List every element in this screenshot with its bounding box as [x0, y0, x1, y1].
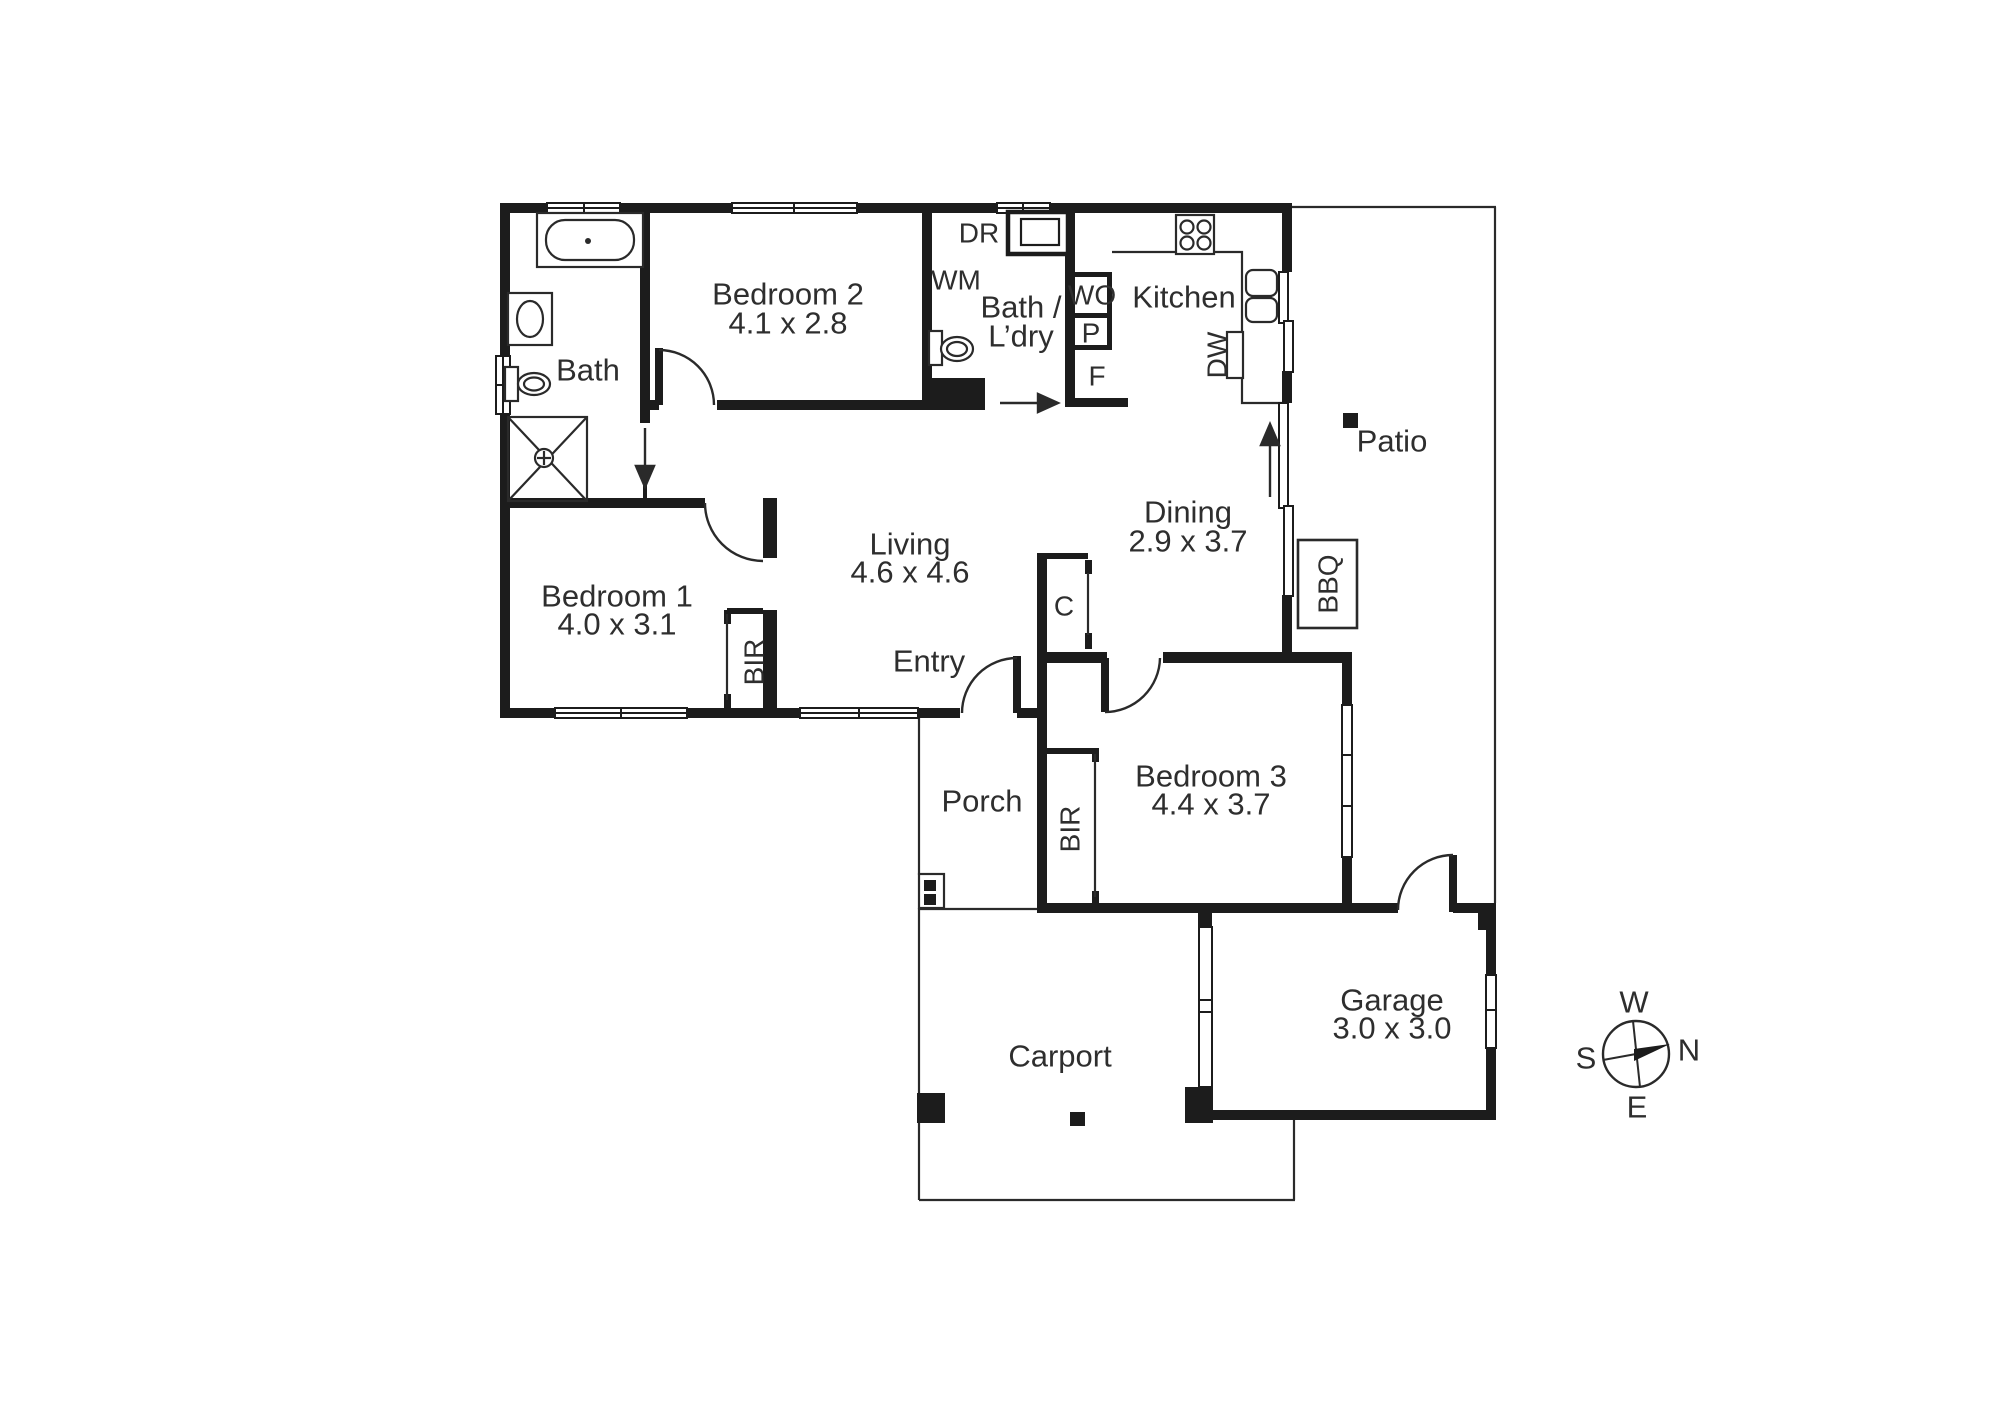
carport-posts [917, 1093, 1085, 1126]
room-label-carport: Carport [1008, 1039, 1112, 1074]
floor-plan-page: W N S E Bath Bedroom 2 4.1 x 2.8 Bath / … [0, 0, 2000, 1413]
room-label-bath: Bath [556, 353, 620, 388]
compass-north-label: N [1678, 1033, 1700, 1068]
room-dims-living: 4.6 x 4.6 [851, 555, 970, 590]
pantry-label: P [1082, 318, 1101, 349]
room-dims-bedroom2: 4.1 x 2.8 [729, 306, 848, 341]
closet-label: C [1054, 591, 1074, 622]
wall-oven-label: WO [1068, 280, 1116, 311]
shower-icon [508, 417, 587, 501]
room-label-porch: Porch [942, 784, 1023, 819]
toilet-bath-icon [505, 367, 550, 401]
room-label-kitchen: Kitchen [1132, 280, 1235, 315]
dishwasher-label: DW [1202, 331, 1233, 378]
room-label-entry: Entry [893, 644, 966, 679]
compass-south-label: S [1576, 1041, 1597, 1076]
meter-box-icon [919, 874, 944, 908]
compass-rose: W N S E [1576, 985, 1701, 1125]
compass-west-label: W [1619, 985, 1649, 1020]
room-dims-garage: 3.0 x 3.0 [1333, 1011, 1452, 1046]
toilet-laundry-icon [929, 331, 973, 365]
vanity-basin-icon [508, 293, 552, 345]
kitchen-sink-icon [1246, 270, 1277, 322]
room-labels: Bath Bedroom 2 4.1 x 2.8 Bath / L’dry Ki… [541, 277, 1451, 1074]
compass-east-label: E [1627, 1090, 1648, 1125]
fridge-label: F [1088, 361, 1105, 392]
bir-bedroom1-label: BIR [739, 639, 770, 686]
bbq-label: BBQ [1313, 554, 1344, 613]
room-dims-bedroom1: 4.0 x 3.1 [558, 607, 677, 642]
room-dims-dining: 2.9 x 3.7 [1129, 524, 1248, 559]
room-label-patio: Patio [1357, 424, 1428, 459]
washing-machine-label: WM [931, 265, 981, 296]
dryer-icon [1008, 212, 1068, 254]
dryer-label: DR [959, 218, 999, 249]
room-label-bath-ldry-line2: L’dry [988, 319, 1054, 354]
room-dims-bedroom3: 4.4 x 3.7 [1152, 787, 1271, 822]
bathtub-icon [537, 213, 643, 267]
cooktop-icon [1176, 215, 1214, 254]
floor-plan-drawing: W N S E Bath Bedroom 2 4.1 x 2.8 Bath / … [0, 0, 2000, 1413]
bir-bedroom3-label: BIR [1055, 806, 1086, 853]
